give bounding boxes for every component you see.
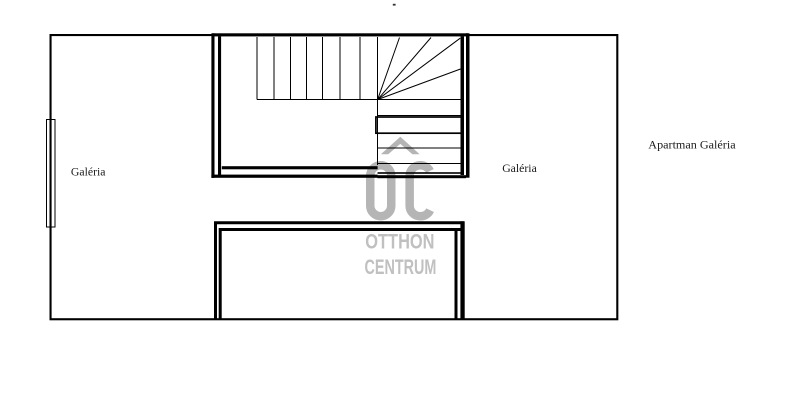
svg-text:Galéria: Galéria bbox=[502, 161, 537, 175]
svg-text:Apartman Galéria: Apartman Galéria bbox=[648, 138, 736, 152]
svg-text:OTTHON: OTTHON bbox=[365, 231, 434, 254]
svg-text:CENTRUM: CENTRUM bbox=[365, 256, 437, 279]
svg-text:Galéria: Galéria bbox=[71, 164, 106, 178]
